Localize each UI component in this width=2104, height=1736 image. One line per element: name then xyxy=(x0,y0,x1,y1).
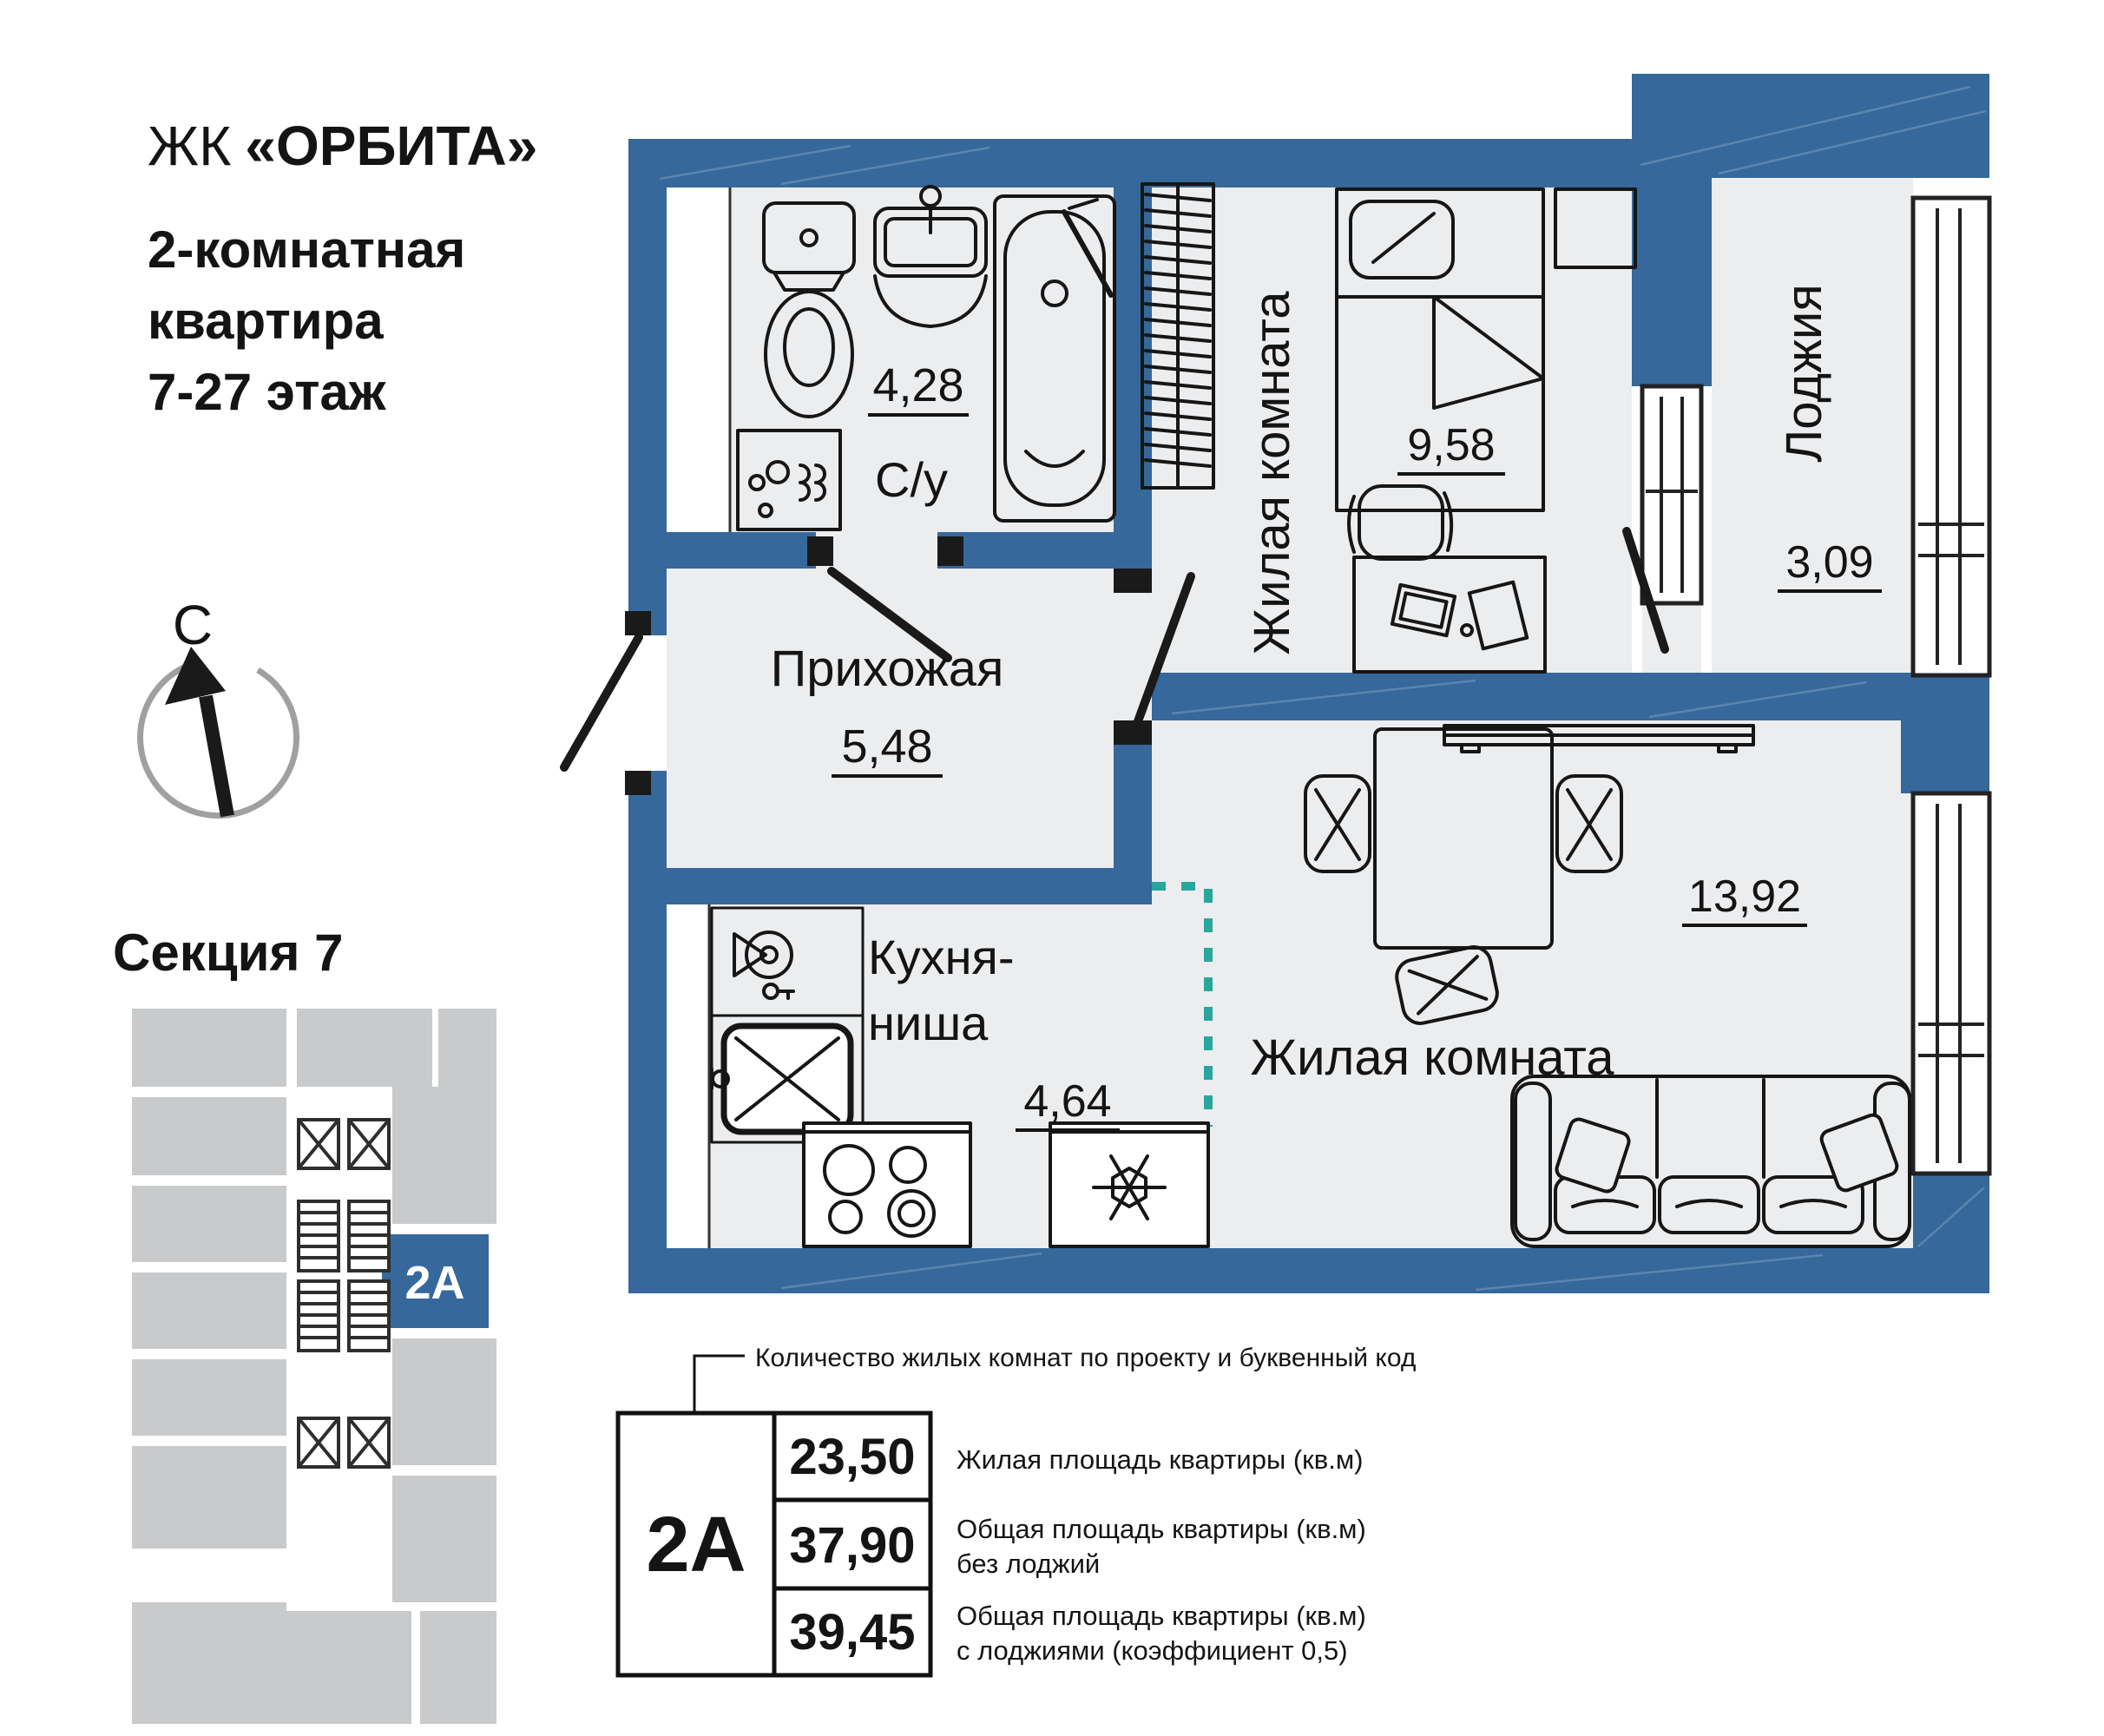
minimap-block xyxy=(392,1338,496,1465)
elevator-icon xyxy=(299,1120,389,1168)
elevator-icon xyxy=(299,1418,389,1467)
living-floor xyxy=(1152,720,1917,1248)
wall-right-upper-corner xyxy=(1901,673,1989,793)
bedroom-area: 9,58 xyxy=(1407,420,1495,470)
loggia-label: Лоджия xyxy=(1776,284,1832,463)
legend: Количество жилых комнат по проекту и бук… xyxy=(618,1344,1416,1675)
wall-bottom xyxy=(667,1248,1989,1293)
minimap-block xyxy=(297,1009,432,1087)
legend-value-living: 23,50 xyxy=(789,1429,915,1485)
legend-desc-2a: Общая площадь квартиры (кв.м) xyxy=(957,1514,1366,1544)
complex-title: ЖК«ОРБИТА» xyxy=(148,115,537,177)
minimap-block xyxy=(132,1186,286,1262)
floor-plan: 4,28 С/у Прихожая 5,48 Жилая комната 9,5… xyxy=(564,74,1989,1293)
page: ЖК«ОРБИТА» 2-комнатная квартира 7-27 эта… xyxy=(0,0,2104,1736)
section-minimap: 2А xyxy=(132,1009,496,1724)
legend-desc-3a: Общая площадь квартиры (кв.м) xyxy=(957,1601,1366,1631)
legend-desc-1: Жилая площадь квартиры (кв.м) xyxy=(957,1444,1363,1475)
loggia-window xyxy=(1913,198,1989,675)
legend-code: 2А xyxy=(646,1502,746,1588)
legend-pointer-line xyxy=(694,1356,745,1411)
legend-value-total: 37,90 xyxy=(789,1517,915,1574)
bathroom-label: С/у xyxy=(875,452,948,507)
bedroom-loggia-window xyxy=(1642,386,1701,603)
loggia-area: 3,09 xyxy=(1785,537,1873,588)
north-label: С xyxy=(173,594,213,656)
kitchen-label-line1: Кухня- xyxy=(868,930,1015,984)
entrance-door xyxy=(564,611,651,795)
minimap-block xyxy=(392,1476,496,1602)
living-window xyxy=(1913,793,1989,1174)
subtitle-line1: 2-комнатная xyxy=(148,220,465,279)
fridge-icon xyxy=(1050,1123,1208,1246)
minimap-unit-label: 2А xyxy=(404,1257,464,1309)
bedroom-label: Жилая комната xyxy=(1244,291,1300,655)
wall-top xyxy=(628,139,1632,187)
legend-note: Количество жилых комнат по проекту и бук… xyxy=(755,1344,1416,1372)
wall-left-lower xyxy=(628,771,667,1293)
subtitle-line2: квартира xyxy=(148,292,384,350)
wall-bathroom-bottom-left xyxy=(667,532,816,569)
legend-desc-2b: без лоджий xyxy=(957,1549,1100,1579)
minimap-block xyxy=(132,1359,286,1436)
wall-bedroom-living xyxy=(1152,673,1901,720)
legend-value-total-loggia: 39,45 xyxy=(789,1604,915,1660)
living-area: 13,92 xyxy=(1688,871,1801,922)
info-panel: ЖК«ОРБИТА» 2-комнатная квартира 7-27 эта… xyxy=(113,115,537,1724)
wall-bathroom-bottom-right xyxy=(937,532,1152,569)
hallway-label: Прихожая xyxy=(771,641,1004,697)
minimap-block xyxy=(132,1272,286,1349)
north-compass: С xyxy=(141,594,297,816)
living-label: Жилая комната xyxy=(1251,1029,1615,1086)
subtitle-line3: 7-27 этаж xyxy=(148,363,387,421)
hallway-area: 5,48 xyxy=(841,720,932,773)
minimap-block xyxy=(420,1611,496,1724)
stairs-icon xyxy=(299,1201,389,1351)
bathroom-area: 4,28 xyxy=(872,359,963,411)
minimap-block xyxy=(132,1446,286,1549)
section-title: Секция 7 xyxy=(113,924,344,982)
minimap-block xyxy=(227,1611,411,1724)
minimap-block xyxy=(132,1009,286,1087)
compass-arrow-shaft xyxy=(206,696,227,816)
doorway-floor xyxy=(816,532,937,569)
kitchen-area: 4,64 xyxy=(1023,1076,1111,1127)
wall-hall-bedroom xyxy=(1114,187,1152,532)
wall-right-lower-corner xyxy=(1913,1174,1989,1250)
bedroom-floor xyxy=(1152,187,1632,673)
legend-desc-3b: с лоджиями (коэффициент 0,5) xyxy=(957,1635,1348,1666)
wall-loggia-divider xyxy=(1632,74,1712,386)
wall-hall-kitchen xyxy=(667,868,1152,904)
minimap-block xyxy=(132,1097,286,1175)
kitchen-label-line2: ниша xyxy=(868,996,989,1050)
stove-icon xyxy=(804,1123,970,1246)
wall-left-upper xyxy=(628,187,667,635)
